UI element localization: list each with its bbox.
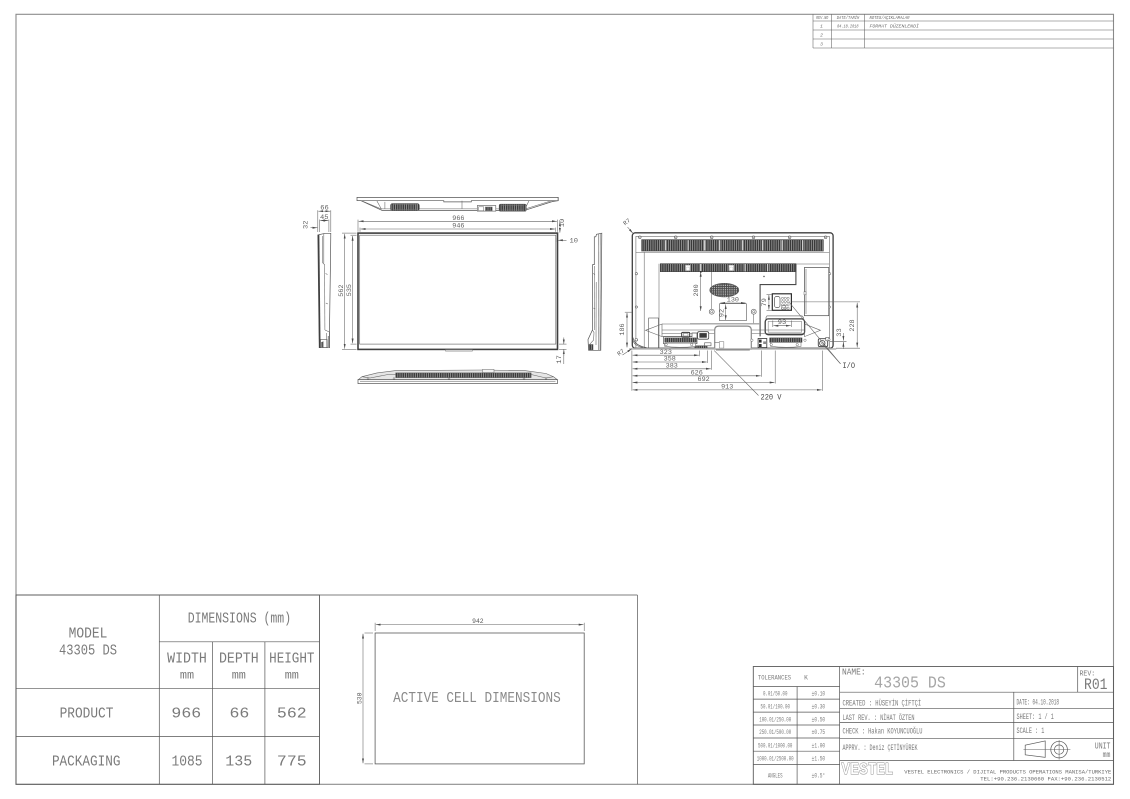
svg-text:±0.75: ±0.75 bbox=[812, 729, 826, 736]
svg-text:mm: mm bbox=[285, 669, 299, 683]
svg-text:DATE/TARİH: DATE/TARİH bbox=[837, 16, 860, 21]
svg-text:±0.50: ±0.50 bbox=[812, 716, 826, 723]
svg-text:2: 2 bbox=[820, 33, 823, 39]
svg-text:383: 383 bbox=[666, 363, 678, 370]
svg-text:92: 92 bbox=[719, 308, 726, 317]
svg-text:43305 DS: 43305 DS bbox=[874, 674, 946, 693]
svg-text:K: K bbox=[804, 675, 808, 682]
svg-text:43305 DS: 43305 DS bbox=[59, 643, 117, 660]
svg-text:913: 913 bbox=[721, 384, 733, 391]
svg-text:200: 200 bbox=[693, 284, 700, 296]
svg-text:DEPTH: DEPTH bbox=[219, 651, 259, 668]
svg-text:966: 966 bbox=[171, 706, 201, 723]
svg-text:946: 946 bbox=[452, 223, 464, 230]
svg-text:33: 33 bbox=[836, 328, 843, 337]
svg-text:DIMENSIONS (mm): DIMENSIONS (mm) bbox=[188, 611, 291, 628]
svg-text:NOTES/AÇIKLAMALAR: NOTES/AÇIKLAMALAR bbox=[870, 16, 910, 21]
svg-text:10: 10 bbox=[570, 238, 579, 245]
svg-text:SHEET: 1 / 1: SHEET: 1 / 1 bbox=[1017, 713, 1055, 722]
svg-text:SCALE : 1: SCALE : 1 bbox=[1017, 727, 1045, 736]
svg-text:WIDTH: WIDTH bbox=[167, 651, 207, 668]
svg-text:93: 93 bbox=[778, 319, 787, 326]
svg-text:220 V: 220 V bbox=[761, 394, 782, 403]
svg-text:±0.5°: ±0.5° bbox=[812, 772, 826, 780]
svg-text:692: 692 bbox=[698, 376, 710, 383]
svg-text:17: 17 bbox=[556, 355, 563, 364]
svg-text:CREATED : HÜSEYİN ÇİFTÇİ: CREATED : HÜSEYİN ÇİFTÇİ bbox=[843, 699, 922, 708]
svg-text:TOLERANCES: TOLERANCES bbox=[758, 675, 791, 682]
svg-text:100.01/250.00: 100.01/250.00 bbox=[759, 716, 791, 723]
svg-text:966: 966 bbox=[452, 215, 464, 222]
svg-text:mm: mm bbox=[180, 669, 194, 683]
svg-text:VESTEL: VESTEL bbox=[842, 761, 894, 778]
svg-text:66: 66 bbox=[320, 205, 329, 212]
svg-text:1000.01/2500.00: 1000.01/2500.00 bbox=[757, 756, 794, 763]
svg-text:I/O: I/O bbox=[843, 361, 856, 371]
svg-text:ACTIVE CELL DIMENSIONS: ACTIVE CELL DIMENSIONS bbox=[393, 690, 561, 707]
svg-text:±0.10: ±0.10 bbox=[812, 691, 826, 698]
svg-text:±1.50: ±1.50 bbox=[812, 756, 826, 763]
svg-text:50.01/100.00: 50.01/100.00 bbox=[761, 703, 791, 710]
svg-text:REV.NO: REV.NO bbox=[816, 17, 828, 21]
svg-text:1: 1 bbox=[820, 24, 823, 30]
svg-text:1085: 1085 bbox=[171, 753, 202, 770]
svg-text:250.01/500.00: 250.01/500.00 bbox=[759, 729, 791, 736]
svg-text:±0.30: ±0.30 bbox=[812, 703, 826, 710]
svg-text:TEL:+90.236.2130660 FAX:+90.23: TEL:+90.236.2130660 FAX:+90.236.2130512 bbox=[980, 775, 1112, 782]
svg-text:535: 535 bbox=[346, 284, 353, 296]
svg-text:mm: mm bbox=[232, 669, 246, 683]
svg-text:562: 562 bbox=[277, 706, 307, 723]
svg-text:130: 130 bbox=[727, 297, 739, 304]
svg-text:PACKAGING: PACKAGING bbox=[52, 753, 121, 770]
svg-text:10: 10 bbox=[559, 218, 566, 227]
svg-text:R01: R01 bbox=[1084, 676, 1108, 694]
svg-text:32: 32 bbox=[302, 220, 309, 229]
svg-text:MODEL: MODEL bbox=[69, 626, 108, 643]
svg-text:APPRV. : Deniz ÇETİNYÜREK: APPRV. : Deniz ÇETİNYÜREK bbox=[843, 744, 918, 753]
svg-text:DATE: 04.10.2018: DATE: 04.10.2018 bbox=[1017, 699, 1060, 708]
svg-text:500.01/1000.00: 500.01/1000.00 bbox=[758, 742, 792, 749]
svg-text:135: 135 bbox=[225, 753, 252, 770]
svg-text:mm: mm bbox=[1103, 751, 1111, 760]
svg-text:HEIGHT: HEIGHT bbox=[269, 651, 314, 668]
svg-text:942: 942 bbox=[472, 618, 484, 625]
svg-text:FORMAT DÜZENLENDİ: FORMAT DÜZENLENDİ bbox=[870, 23, 920, 30]
svg-text:VESTEL ELECTRONICS / DIJITAL P: VESTEL ELECTRONICS / DIJITAL PRODUCTS OP… bbox=[904, 768, 1111, 775]
svg-text:775: 775 bbox=[277, 753, 307, 770]
svg-text:ANGLES: ANGLES bbox=[768, 773, 783, 780]
svg-text:66: 66 bbox=[230, 706, 250, 723]
svg-text:186: 186 bbox=[619, 323, 626, 335]
svg-text:±1.00: ±1.00 bbox=[812, 742, 826, 749]
svg-text:CHECK : Hakan KOYUNCUOĞLU: CHECK : Hakan KOYUNCUOĞLU bbox=[843, 727, 923, 737]
svg-text:228: 228 bbox=[849, 319, 856, 331]
svg-text:562: 562 bbox=[338, 284, 345, 296]
svg-text:0.01/50.00: 0.01/50.00 bbox=[763, 691, 788, 698]
svg-text:UNIT: UNIT bbox=[1095, 742, 1111, 752]
svg-text:PRODUCT: PRODUCT bbox=[60, 706, 114, 723]
svg-text:04.10.2018: 04.10.2018 bbox=[837, 24, 859, 30]
svg-text:NAME:: NAME: bbox=[842, 668, 866, 678]
svg-text:79: 79 bbox=[761, 298, 768, 307]
svg-text:LAST REV. : NİHAT ÖZTEN: LAST REV. : NİHAT ÖZTEN bbox=[843, 714, 915, 723]
svg-text:3: 3 bbox=[820, 42, 823, 48]
svg-text:45: 45 bbox=[320, 214, 329, 221]
svg-text:530: 530 bbox=[357, 692, 364, 704]
